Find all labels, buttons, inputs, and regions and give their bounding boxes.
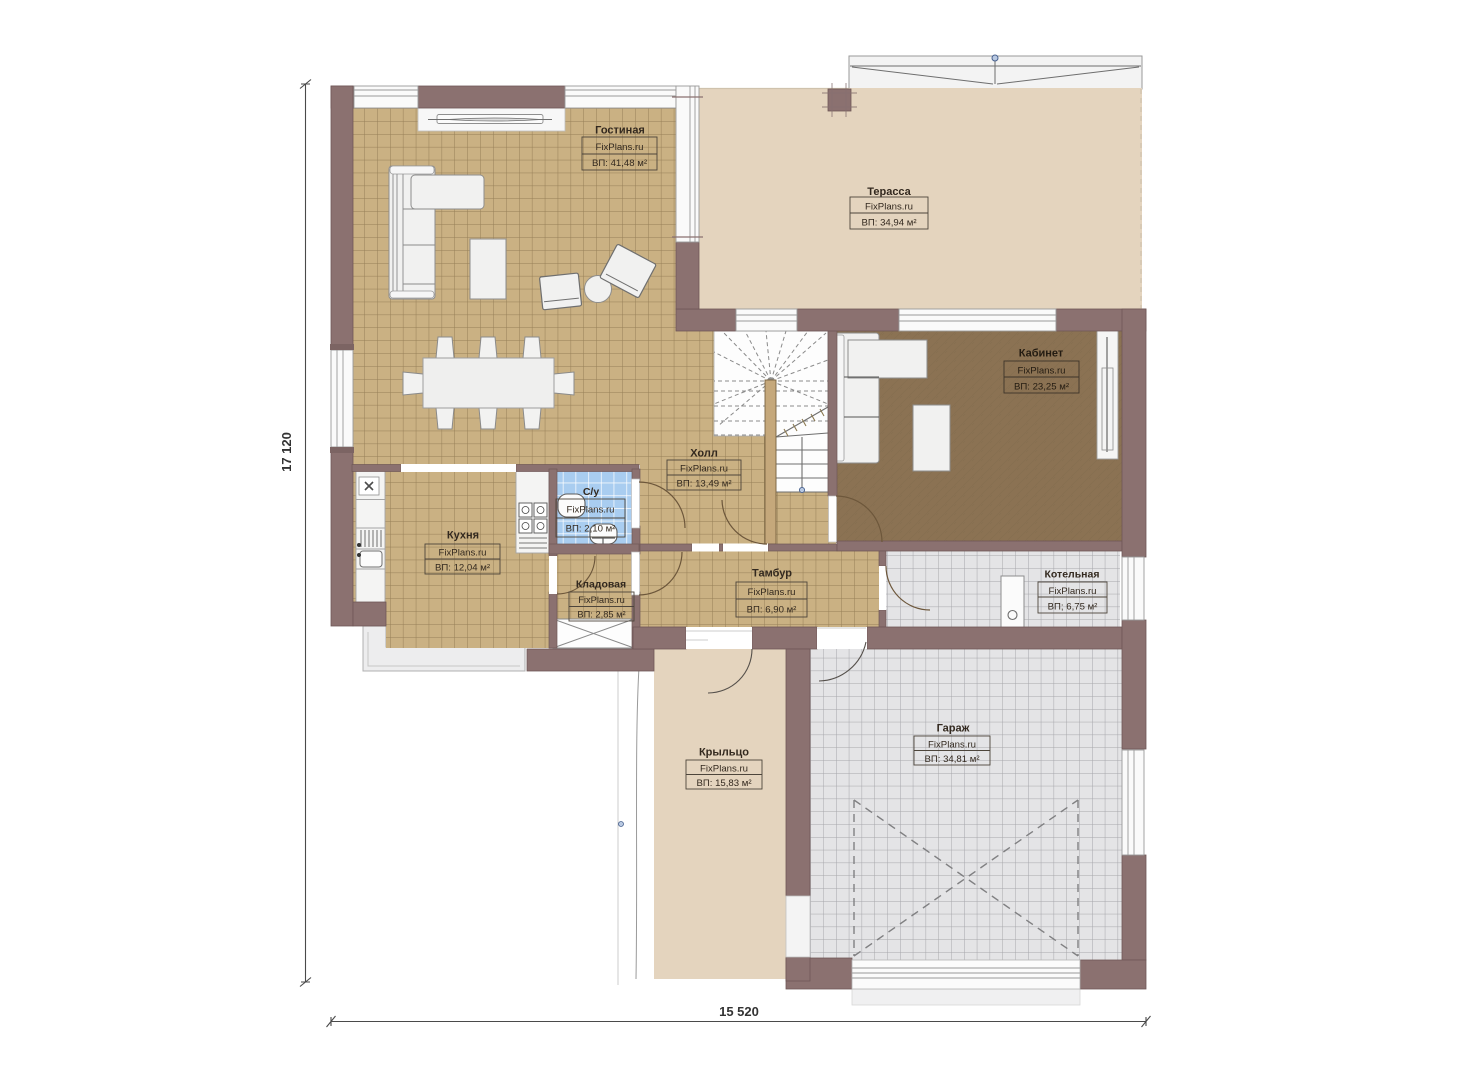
svg-text:Гараж: Гараж [937,723,970,735]
svg-text:FixPlans.ru: FixPlans.ru [700,764,748,775]
svg-text:FixPlans.ru: FixPlans.ru [1049,586,1097,597]
svg-text:17 120: 17 120 [279,432,294,472]
svg-text:ВП: 15,83 м²: ВП: 15,83 м² [696,778,752,789]
svg-text:ВП: 2,10 м²: ВП: 2,10 м² [566,524,617,535]
svg-text:ВП: 34,94 м²: ВП: 34,94 м² [861,218,917,229]
svg-text:FixPlans.ru: FixPlans.ru [748,587,796,598]
svg-text:Кухня: Кухня [447,530,479,542]
svg-text:Тамбур: Тамбур [752,568,792,580]
svg-text:FixPlans.ru: FixPlans.ru [439,548,487,559]
svg-text:С/у: С/у [583,486,600,498]
svg-text:ВП: 6,90 м²: ВП: 6,90 м² [747,605,798,616]
svg-text:FixPlans.ru: FixPlans.ru [596,142,644,153]
svg-text:Крыльцо: Крыльцо [699,747,749,759]
svg-text:ВП: 13,49 м²: ВП: 13,49 м² [676,479,732,490]
svg-text:Гостиная: Гостиная [595,125,645,137]
svg-text:FixPlans.ru: FixPlans.ru [578,595,625,605]
svg-text:Кладовая: Кладовая [576,579,626,591]
svg-text:ВП; 6,75 м²: ВП; 6,75 м² [1048,602,1099,613]
svg-text:ВП: 12,04 м²: ВП: 12,04 м² [435,563,491,574]
svg-text:FixPlans.ru: FixPlans.ru [928,740,976,751]
svg-text:Холл: Холл [690,448,718,460]
svg-text:FixPlans.ru: FixPlans.ru [680,464,728,475]
svg-text:ВП: 2,85 м²: ВП: 2,85 м² [577,610,625,620]
svg-text:15 520: 15 520 [719,1004,759,1019]
svg-text:ВП: 41,48 м²: ВП: 41,48 м² [592,158,648,169]
svg-text:Терасса: Терасса [867,186,911,198]
svg-text:FixPlans.ru: FixPlans.ru [1018,366,1066,377]
svg-text:FixPlans.ru: FixPlans.ru [567,505,615,516]
svg-text:ВП: 23,25 м²: ВП: 23,25 м² [1014,382,1070,393]
svg-text:FixPlans.ru: FixPlans.ru [865,202,913,213]
svg-text:Котельная: Котельная [1045,569,1100,581]
svg-text:Кабинет: Кабинет [1019,348,1064,360]
svg-text:ВП: 34,81 м²: ВП: 34,81 м² [924,754,980,765]
